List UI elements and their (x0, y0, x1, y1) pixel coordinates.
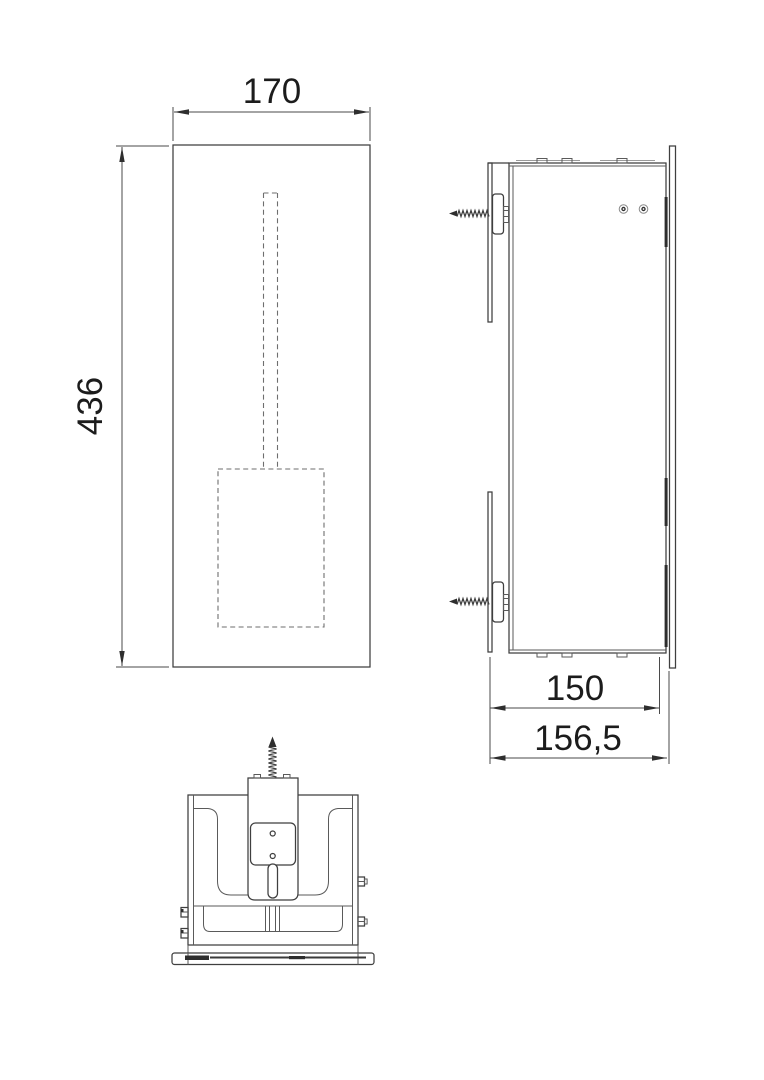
plate-slot (185, 956, 209, 961)
dim-label-depth-overall: 156,5 (534, 719, 622, 758)
dim-label-front-width: 170 (243, 72, 301, 111)
wall-rail-lower (488, 492, 492, 652)
hinge-seam (665, 478, 668, 526)
housing-box (509, 159, 668, 658)
mounting-bracket (493, 194, 504, 234)
technical-drawing-canvas: 170 436 (0, 0, 764, 1080)
bottom-view (172, 737, 374, 965)
hinge-seam (665, 565, 668, 647)
hinge-seam (665, 197, 668, 247)
left-clip (181, 929, 188, 939)
side-screw-icon (358, 917, 367, 926)
left-clip (181, 908, 188, 918)
screw-hole (270, 854, 275, 859)
centre-post (266, 906, 280, 932)
screw-head-icon (619, 205, 628, 214)
front-cover-panel-edge (670, 146, 676, 668)
plate-slot (289, 956, 305, 959)
fixing-screw-icon (269, 737, 277, 778)
adjustment-slot (268, 864, 278, 898)
hidden-brush-container (218, 469, 324, 627)
cover-plate-edge (172, 945, 374, 965)
technical-drawing-page: 170 436 (0, 0, 764, 1080)
screw-hole (270, 831, 275, 836)
mounting-bracket (493, 582, 504, 622)
mounting-bracket-top-view (248, 775, 298, 901)
hidden-brush-handle (264, 193, 278, 469)
screw-head-icon (639, 205, 648, 214)
dim-label-front-height: 436 (71, 377, 110, 435)
wall-rail-upper (488, 163, 492, 322)
side-screw-icon (358, 877, 367, 886)
dimension-front-width: 170 (173, 72, 370, 141)
wall-screw-icon (449, 211, 489, 217)
lower-fixing (449, 582, 509, 622)
front-view: 170 436 (71, 72, 370, 667)
side-view: 150 156,5 (449, 146, 676, 764)
upper-fixing (449, 194, 509, 234)
bracket-clip (504, 595, 509, 611)
wall-screw-icon (449, 599, 489, 605)
dimension-front-height: 436 (71, 146, 169, 667)
bracket-clip (504, 207, 509, 223)
dim-label-depth-inner: 150 (546, 669, 604, 708)
front-panel-outline (173, 145, 370, 667)
